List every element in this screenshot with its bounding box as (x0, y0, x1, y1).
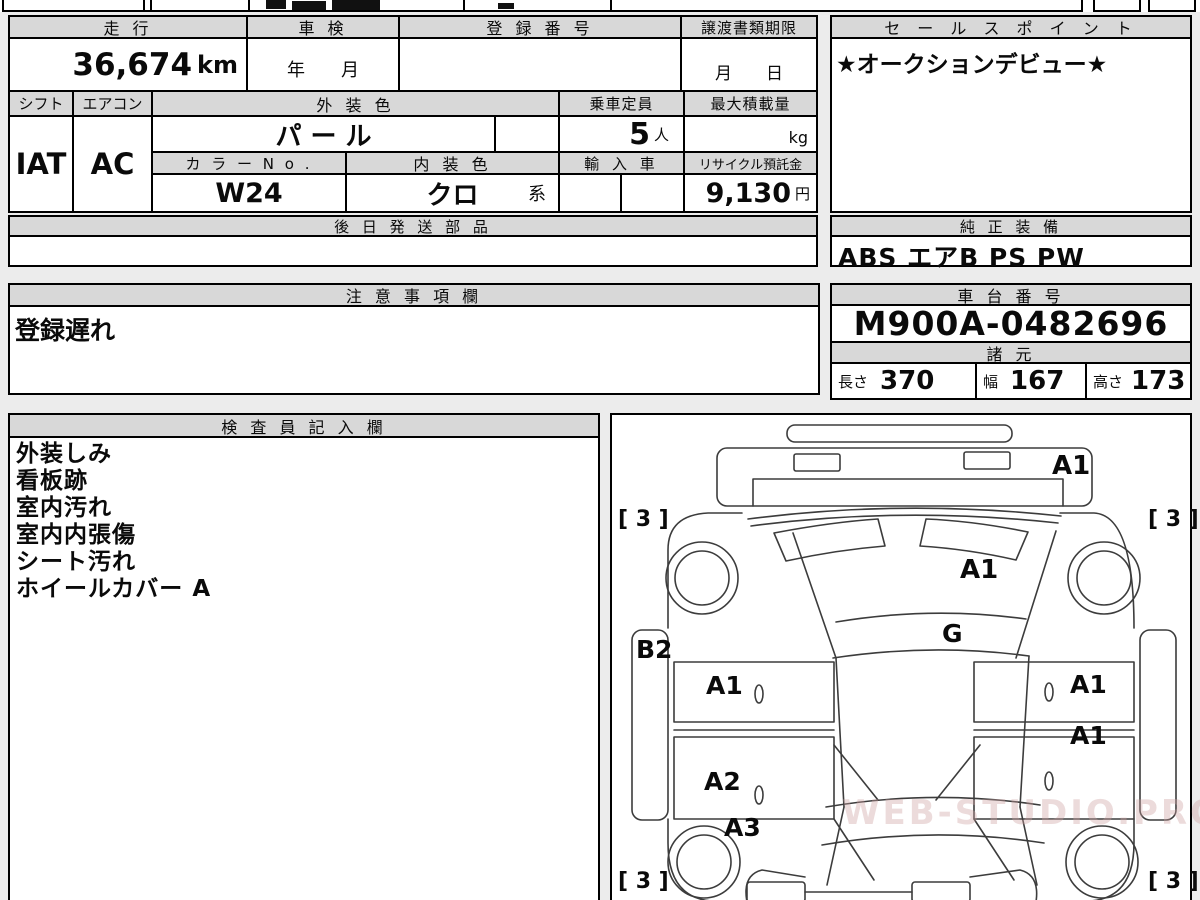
divider (463, 0, 465, 12)
recycle-value: 9,130 円 (685, 175, 816, 211)
auction-sheet: 走 行 車 検 登 録 番 号 譲渡書類期限 36,674 km 年 月 月 日… (0, 0, 1200, 900)
inspector-notes-header: 検 査 員 記 入 欄 (10, 415, 598, 438)
inspector-item: 外装しみ (10, 441, 211, 468)
vehicle-info-table: 走 行 車 検 登 録 番 号 譲渡書類期限 36,674 km 年 月 月 日… (8, 15, 818, 213)
grade-label-door-right-front: A1 (1070, 721, 1107, 750)
divider (1139, 0, 1141, 12)
divider (150, 0, 152, 12)
cropped-row-artifact (0, 0, 1200, 12)
divider (1093, 10, 1141, 12)
transfer-doc-header: 譲渡書類期限 (682, 17, 816, 39)
rear-glass-right (920, 519, 1028, 560)
divider (1081, 0, 1083, 12)
license-lamp-left (794, 454, 840, 471)
shaken-value: 年 月 (248, 39, 400, 92)
mileage-header: 走 行 (10, 17, 248, 39)
inspector-item: 室内内張傷 (10, 522, 211, 549)
roof-band-arc (836, 613, 1026, 622)
spec-width-value: 167 (1010, 366, 1064, 396)
divider (143, 0, 145, 12)
front-bumper-corner-right (970, 870, 1037, 900)
spec-height: 高さ 173 (1087, 364, 1190, 398)
inspector-item: 室内汚れ (10, 495, 211, 522)
chassis-value: M900A-0482696 (832, 306, 1190, 343)
front-wheel-left-inner (677, 835, 731, 889)
mileage-unit: km (197, 51, 238, 79)
aircon-header: エアコン (74, 92, 153, 117)
grade-label-rocker-left: B2 (636, 635, 672, 664)
rear-wheel-left-inner (675, 551, 729, 605)
capacity-number: 5 (629, 117, 650, 152)
grade-label-fender-left-front: A3 (724, 813, 761, 842)
shaken-header: 車 検 (248, 17, 400, 39)
door-rear-right (974, 662, 1134, 722)
chassis-box: 車 台 番 号 M900A-0482696 諸 元 長さ 370 幅 167 高… (830, 283, 1192, 400)
watermark: WEB-STUDIO.PRO (842, 793, 1200, 833)
rear-bumper (717, 448, 1092, 506)
spec-length-value: 370 (880, 366, 934, 396)
grade-label-roof: G (942, 619, 963, 648)
front-fender-left (668, 819, 712, 900)
import-header: 輸 入 車 (560, 153, 685, 175)
later-parts-header: 後 日 発 送 部 品 (10, 217, 816, 237)
headlight-left (747, 882, 805, 900)
max-load-header: 最大積載量 (685, 92, 816, 117)
notes-header: 注 意 事 項 欄 (10, 285, 818, 307)
genuine-equipment-header: 純 正 装 備 (832, 217, 1190, 237)
recycle-number: 9,130 (706, 178, 791, 209)
pillar-slant-left (834, 745, 878, 800)
genuine-equipment-value: ABS エアB PS PW (838, 238, 1085, 274)
door-handle-right-rear (1045, 683, 1053, 701)
inspector-item: ホイールカバー A (10, 576, 211, 603)
divider (248, 0, 250, 12)
inspector-item: シート汚れ (10, 549, 211, 576)
cabin-side-right (1020, 656, 1029, 807)
later-parts-box: 後 日 発 送 部 品 (8, 215, 818, 267)
interior-color-value: クロ 系 (347, 175, 560, 211)
aircon-value: AC (74, 117, 153, 211)
cutoff-text (292, 1, 326, 10)
tire-depth-front-left: [ 3 ] (618, 869, 669, 894)
capacity-value: 5 人 (560, 117, 685, 153)
sales-point-value: ★オークションデビュー★ (836, 45, 1107, 79)
capacity-header: 乗車定員 (560, 92, 685, 117)
rear-glass-arc (748, 508, 1061, 519)
door-front-left (674, 737, 834, 819)
sales-point-header: セ ー ル ス ポ イ ン ト (832, 17, 1190, 39)
inspector-item: 看板跡 (10, 468, 211, 495)
color-no-value: W24 (153, 175, 347, 211)
capacity-unit: 人 (654, 124, 669, 145)
tire-depth-rear-left: [ 3 ] (618, 507, 669, 532)
grade-label-tailgate: A1 (960, 555, 998, 585)
transfer-doc-value: 月 日 (682, 39, 816, 92)
quarter-panel-left (668, 513, 742, 628)
import-value-2 (622, 175, 685, 211)
recycle-unit: 円 (795, 183, 810, 204)
tailgate-edge-left (793, 533, 836, 658)
grade-label-door-left-rear: A1 (706, 671, 743, 700)
genuine-equipment-box: 純 正 装 備 ABS エアB PS PW (830, 215, 1192, 267)
front-wheel-right-inner (1075, 835, 1129, 889)
tire-depth-front-right: [ 3 ] (1148, 869, 1199, 894)
divider (2, 0, 4, 12)
exterior-color-header: 外 装 色 (153, 92, 560, 117)
grade-label-door-right-rear: A1 (1070, 670, 1107, 699)
license-lamp-right (964, 452, 1010, 469)
front-wheel-right (1066, 826, 1138, 898)
recycle-header: リサイクル預託金 (685, 153, 816, 175)
rear-spoiler (787, 425, 1012, 442)
door-handle-left-rear (755, 685, 763, 703)
registration-value (400, 39, 682, 92)
spec-height-label: 高さ (1093, 371, 1123, 392)
rear-wheel-left (666, 542, 738, 614)
quarter-panel-right (1060, 513, 1134, 628)
front-bumper-corner-left (746, 870, 805, 900)
windshield-arc (822, 835, 1044, 845)
interior-color-suffix: 系 (528, 180, 546, 206)
grade-label-door-left-front: A2 (704, 767, 741, 796)
rear-bumper-inner-line (753, 479, 1063, 506)
exterior-color-extra (496, 117, 560, 153)
rear-glass-arc (751, 515, 1058, 526)
max-load-value: kg (685, 117, 816, 153)
interior-color-header: 内 装 色 (347, 153, 560, 175)
divider (610, 0, 612, 12)
inspector-notes-box: 検 査 員 記 入 欄 外装しみ 看板跡 室内汚れ 室内内張傷 シート汚れ ホイ… (8, 413, 600, 900)
sales-point-box: セ ー ル ス ポ イ ン ト ★オークションデビュー★ (830, 15, 1192, 213)
door-handle-right-front (1045, 772, 1053, 790)
cabin-side-left (836, 658, 844, 807)
rear-glass-left (774, 519, 885, 561)
later-parts-value (10, 237, 816, 265)
door-handle-left-front (755, 786, 763, 804)
divider (1093, 0, 1095, 12)
door-rear-left (674, 662, 834, 722)
import-value-1 (560, 175, 622, 211)
exterior-color-value: パ ー ル (153, 117, 496, 153)
spec-height-value: 173 (1131, 366, 1185, 396)
spec-width: 幅 167 (977, 364, 1087, 398)
mileage-number: 36,674 (72, 47, 192, 83)
divider (1148, 0, 1150, 12)
chassis-header: 車 台 番 号 (832, 285, 1190, 306)
cutoff-text (266, 0, 286, 9)
divider (2, 10, 1083, 12)
specs-header: 諸 元 (832, 343, 1190, 364)
spec-length: 長さ 370 (832, 364, 977, 398)
divider (1194, 0, 1196, 12)
headlight-right (912, 882, 970, 900)
rocker-panel-right (1140, 630, 1176, 820)
damage-diagram-box: WEB-STUDIO.PRO A1 [ 3 ] [ 3 ] A1 G B2 A1… (610, 413, 1192, 900)
rear-wheel-right (1068, 542, 1140, 614)
notes-value: 登録遅れ (15, 311, 115, 347)
spec-width-label: 幅 (983, 371, 998, 392)
tire-depth-rear-right: [ 3 ] (1148, 507, 1199, 532)
color-no-header: カ ラ ー N o . (153, 153, 347, 175)
rear-wheel-right-inner (1077, 551, 1131, 605)
interior-color-name: クロ (426, 175, 478, 211)
roof-band-arc (833, 650, 1029, 658)
notes-box: 注 意 事 項 欄 登録遅れ (8, 283, 820, 395)
spec-length-label: 長さ (838, 371, 868, 392)
registration-header: 登 録 番 号 (400, 17, 682, 39)
shift-value: IAT (10, 117, 74, 211)
shift-header: シフト (10, 92, 74, 117)
cutoff-text (498, 3, 514, 9)
tailgate-edge-right (1016, 531, 1056, 658)
cutoff-text (332, 0, 380, 10)
grade-label-rear-bumper: A1 (1052, 451, 1090, 481)
divider (1148, 10, 1196, 12)
mileage-value: 36,674 km (10, 39, 248, 92)
